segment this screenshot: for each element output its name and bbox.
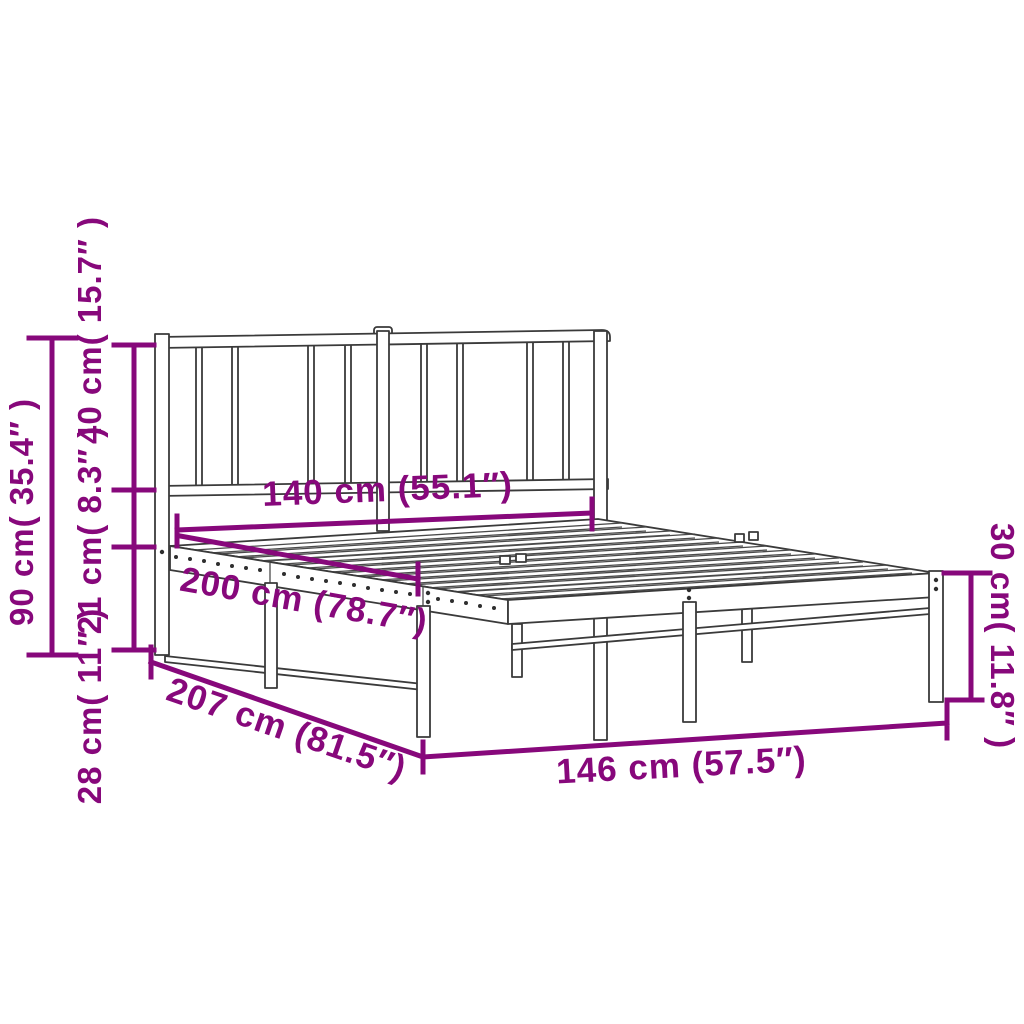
- foot-mid-leg: [683, 602, 696, 722]
- dimension-left-stack: 40 cm( 15.7″ ) 21 cm( 8.3″ ) 28 cm( 11″ …: [71, 216, 154, 804]
- slat-stop-bracket: [749, 532, 758, 540]
- headboard-left-post: [155, 334, 169, 655]
- headboard-height-label: 90 cm( 35.4″ ): [3, 398, 40, 626]
- panel-to-platform-label: 21 cm( 8.3″ ): [71, 426, 108, 635]
- headboard-width-label: 140 cm (55.1″): [262, 465, 514, 514]
- headboard-panel-height-label: 40 cm( 15.7″ ): [71, 216, 108, 444]
- platform-height-label: 30 cm( 11.8″ ): [984, 523, 1021, 749]
- product-dimension-diagram: 140 cm (55.1″) 200 cm (78.7″) 90 cm( 35.…: [0, 0, 1024, 1024]
- bed-frame-dimension-svg: 140 cm (55.1″) 200 cm (78.7″) 90 cm( 35.…: [0, 0, 1024, 1024]
- center-bracket: [500, 556, 510, 564]
- dimension-platform-height: 30 cm( 11.8″ ): [944, 523, 1021, 749]
- slat-stop-bracket: [735, 534, 744, 542]
- dimension-headboard-height: 90 cm( 35.4″ ): [3, 338, 76, 655]
- center-bracket: [516, 554, 526, 562]
- total-length-label: 207 cm (81.5″): [162, 670, 412, 788]
- dimension-total-length: 207 cm (81.5″): [151, 647, 423, 788]
- underbed-clearance-label: 28 cm( 11″ ): [71, 608, 108, 805]
- bed-illustration: [155, 327, 943, 740]
